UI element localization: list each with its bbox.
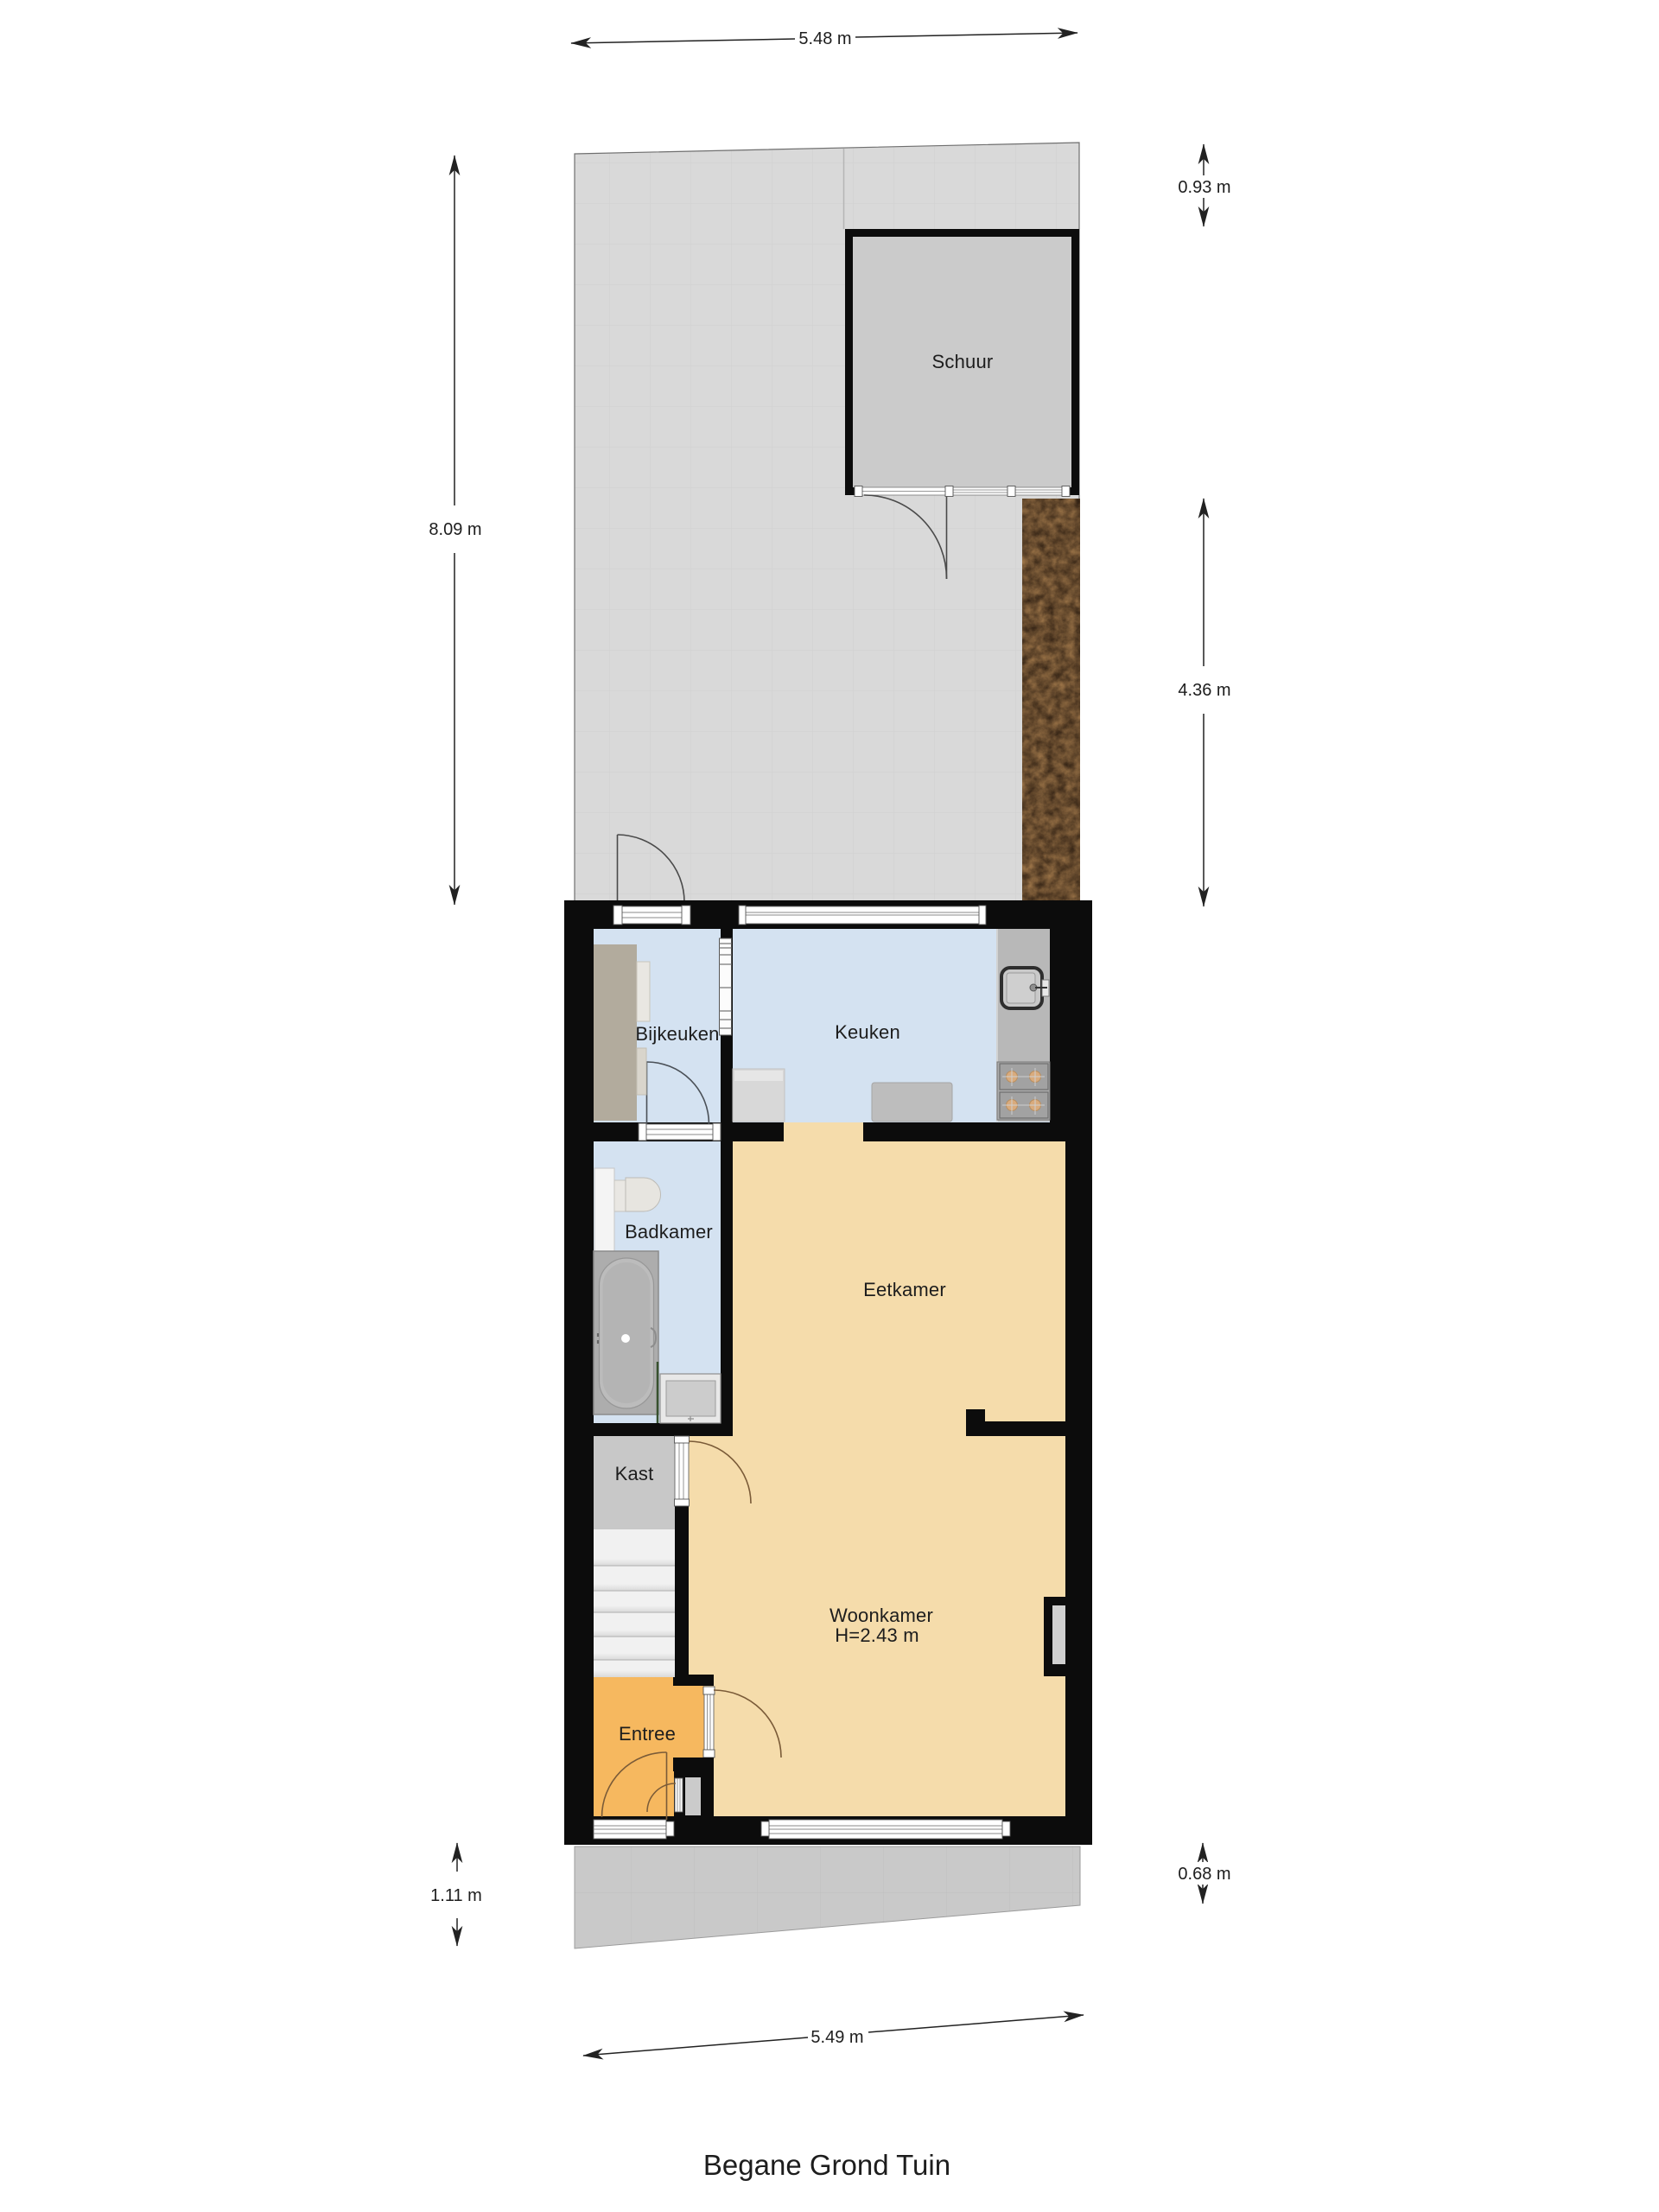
svg-text:5.49 m: 5.49 m: [810, 2028, 863, 2047]
svg-text:0.68 m: 0.68 m: [1178, 1865, 1230, 1884]
svg-text:1.11 m: 1.11 m: [430, 1886, 482, 1905]
svg-text:Entree: Entree: [619, 1723, 676, 1745]
svg-text:H=2.43 m: H=2.43 m: [835, 1624, 919, 1646]
svg-text:Begane Grond Tuin: Begane Grond Tuin: [703, 2149, 950, 2181]
svg-text:5.48 m: 5.48 m: [798, 29, 851, 48]
svg-text:Eetkamer: Eetkamer: [863, 1279, 946, 1300]
svg-text:Woonkamer: Woonkamer: [829, 1605, 933, 1626]
svg-text:Badkamer: Badkamer: [625, 1221, 713, 1243]
svg-text:Keuken: Keuken: [835, 1021, 900, 1043]
svg-text:Kast: Kast: [615, 1463, 654, 1484]
svg-text:0.93 m: 0.93 m: [1178, 178, 1230, 197]
svg-text:4.36 m: 4.36 m: [1178, 681, 1230, 700]
svg-text:Bijkeuken: Bijkeuken: [635, 1023, 719, 1045]
svg-text:8.09 m: 8.09 m: [429, 520, 481, 539]
svg-text:Schuur: Schuur: [932, 351, 994, 372]
